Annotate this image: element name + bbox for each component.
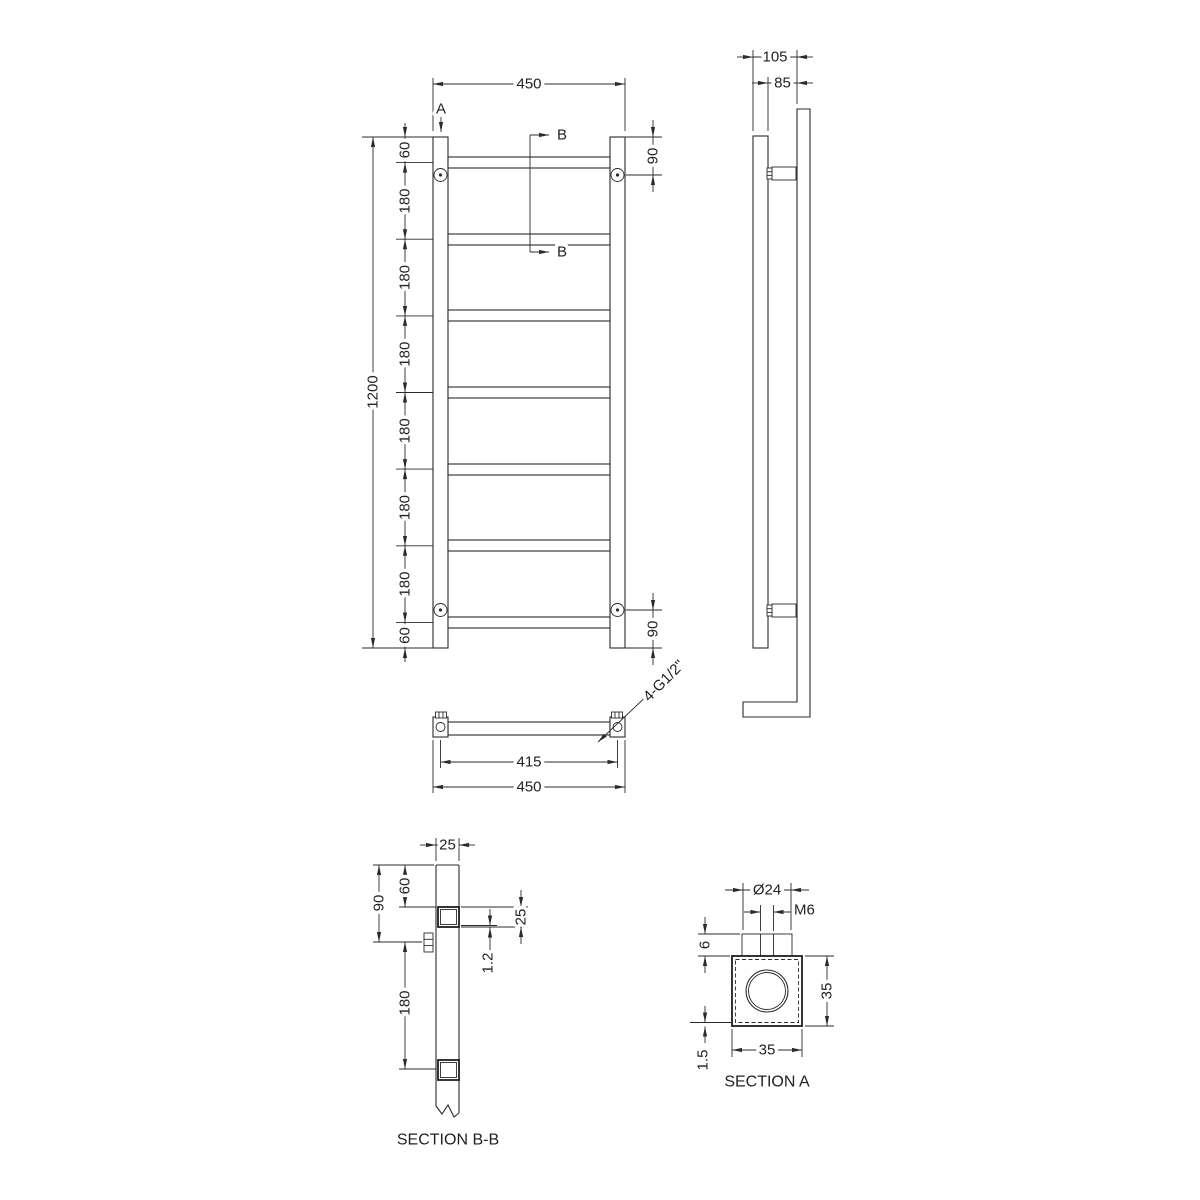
rung	[448, 464, 610, 475]
dim-bb-bracket-offset-text: 90	[371, 895, 388, 912]
left-inlet-hole	[436, 723, 445, 732]
dim-a-wall-thickness-text: 1.5	[695, 1050, 712, 1071]
rung	[448, 157, 610, 168]
dim-a-bore-text: Ø24	[753, 882, 781, 899]
dim-rung-pitch-text: 180	[397, 265, 414, 290]
dim-front-rung-chain: 60 180 180 180 180 180 180 60	[396, 123, 433, 662]
section-a-view: Ø24 M6 6 35 35	[690, 882, 836, 1091]
screw-top-left	[434, 169, 447, 182]
section-marker-b-bottom-text: B	[557, 244, 567, 261]
dim-front-overall-width-text: 450	[516, 76, 541, 93]
dim-rung-pitch-text: 180	[397, 342, 414, 367]
rung	[448, 234, 610, 245]
front-view: 450 1200 60	[362, 76, 662, 666]
dim-screw-offset-top-text: 90	[645, 148, 662, 165]
dim-screw-offset-top: 90	[625, 120, 662, 192]
dim-front-overall-height-text: 1200	[365, 375, 382, 408]
dim-a-thread: M6	[744, 902, 815, 932]
bracket-bottom	[767, 604, 796, 617]
dim-rung-pitch-text: 180	[397, 188, 414, 213]
screw-top-right	[611, 169, 624, 182]
dim-bb-rung-size-text: 25	[513, 909, 530, 926]
dim-screw-offset-bottom-text: 90	[645, 621, 662, 638]
rail-section-outer	[732, 956, 802, 1026]
rung	[448, 310, 610, 321]
dim-hole-centers-text: 415	[516, 754, 541, 771]
left-rail	[433, 137, 448, 648]
dim-a-wall-thickness: 1.5	[690, 1006, 733, 1070]
bracket-top	[767, 167, 796, 180]
dim-bb-wall-thickness-text: 1.2	[480, 953, 497, 974]
dim-bb-bracket-offset: 90	[371, 865, 435, 942]
dim-bb-wall-thickness: 1.2	[461, 909, 497, 973]
section-marker-b-top-text: B	[557, 127, 567, 144]
rail-side	[753, 136, 768, 648]
rung	[448, 387, 610, 398]
connection-callout: 4-G1/2"	[598, 657, 688, 742]
dim-overall-depth-text: 105	[762, 49, 787, 66]
dim-a-width-text: 35	[759, 1042, 776, 1059]
dim-wall-gap-text: 85	[774, 75, 791, 92]
side-view: 105 85	[737, 49, 813, 718]
dim-front-overall-width: 450	[433, 76, 625, 132]
right-rail	[610, 137, 625, 648]
boss	[742, 934, 792, 956]
rung	[448, 540, 610, 551]
section-marker-a-text: A	[436, 101, 446, 118]
technical-drawing-page: 450 1200 60	[0, 0, 1200, 1200]
right-bracket-plan	[612, 712, 623, 718]
dim-a-width: 35	[732, 1029, 802, 1059]
dim-a-height: 35	[805, 956, 836, 1026]
dim-rung-pitch-text: 180	[397, 418, 414, 443]
dim-screw-offset-bottom: 90	[625, 593, 662, 665]
dim-a-boss-height-text: 6	[697, 941, 714, 949]
dim-top-offset-text: 60	[397, 142, 414, 159]
dim-plan-overall-width-text: 450	[516, 779, 541, 796]
rung-section-1	[438, 907, 459, 927]
left-bracket-plan	[436, 712, 447, 718]
bottom-rung-plan	[448, 722, 610, 735]
dim-bb-tube-width-text: 25	[439, 837, 456, 854]
section-bb-label: SECTION B-B	[397, 1132, 499, 1149]
dim-bb-rung-pitch: 180	[397, 942, 437, 1069]
plan-view: 4-G1/2" 415 450	[433, 657, 688, 796]
dim-bb-rung-size: 25	[461, 890, 530, 944]
dim-rung-pitch-text: 180	[397, 572, 414, 597]
dim-hole-centers: 415	[441, 740, 618, 771]
dim-bb-top-offset-text: 60	[397, 878, 414, 895]
dim-wall-gap: 85	[752, 75, 813, 132]
dim-rung-pitch-text: 180	[397, 495, 414, 520]
section-marker-a: A	[436, 101, 446, 133]
screw-bottom-right	[611, 604, 624, 617]
dim-bb-top-offset: 60	[397, 865, 437, 907]
dim-a-thread-text: M6	[794, 902, 815, 919]
dim-a-height-text: 35	[819, 983, 836, 1000]
towel-rail-drawing: 450 1200 60	[0, 0, 1200, 1200]
connection-label: 4-G1/2"	[640, 657, 688, 705]
screw-bottom-left	[434, 604, 447, 617]
dim-bottom-offset-text: 60	[397, 627, 414, 644]
section-a-label: SECTION A	[724, 1074, 810, 1091]
rung-section-2	[438, 1060, 459, 1080]
bracket-section	[424, 933, 433, 952]
rung	[448, 617, 610, 628]
dim-bb-rung-pitch-text: 180	[397, 990, 414, 1015]
section-bb-view: 25 90 60 180 25	[371, 837, 530, 1149]
dim-bb-tube-width: 25	[420, 837, 475, 862]
